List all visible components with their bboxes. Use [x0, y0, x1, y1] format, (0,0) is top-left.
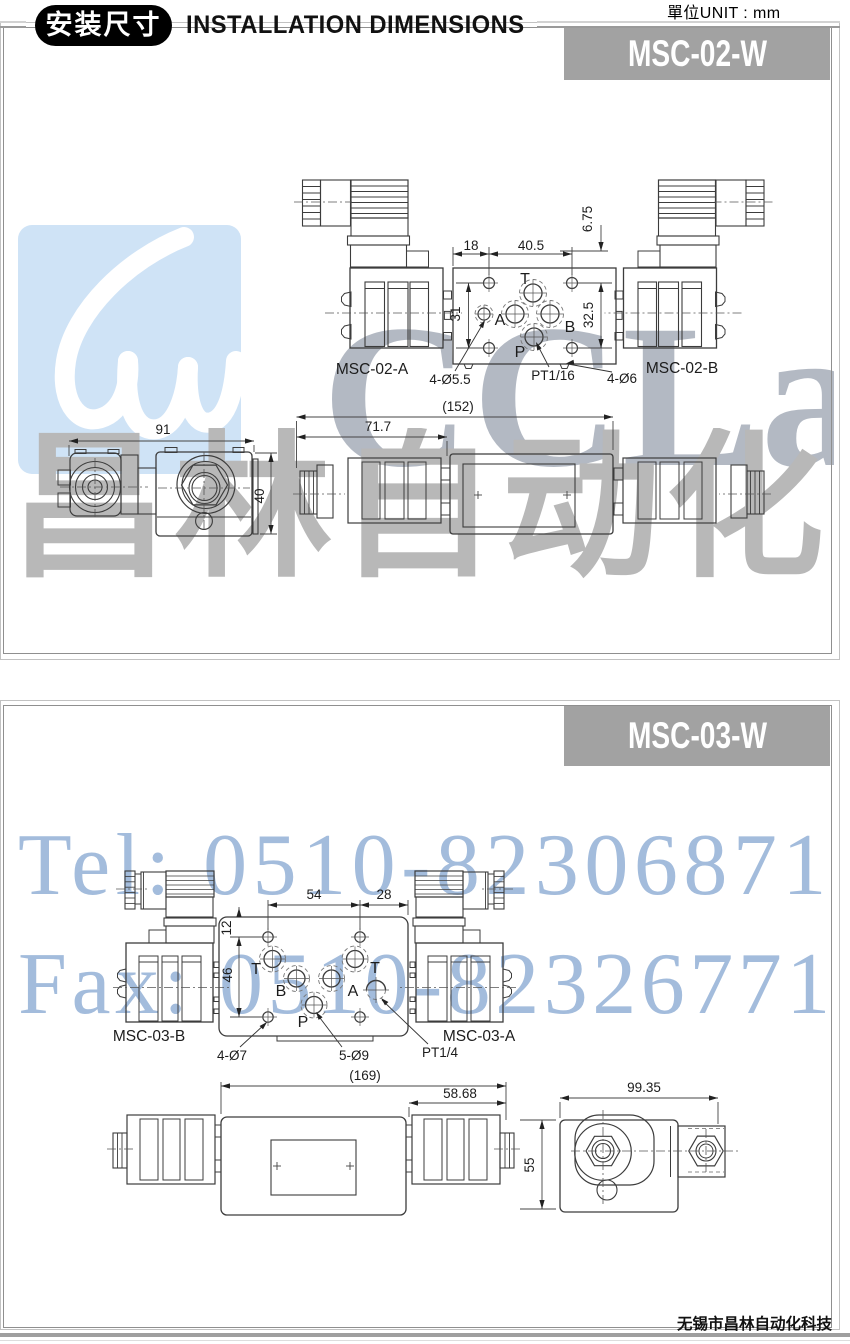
svg-text:18: 18	[463, 238, 478, 253]
svg-text:91: 91	[155, 422, 170, 437]
svg-text:40: 40	[252, 488, 267, 503]
svg-text:6.75: 6.75	[580, 206, 595, 232]
svg-text:32.5: 32.5	[581, 302, 596, 328]
svg-text:A: A	[495, 312, 506, 329]
svg-text:71.7: 71.7	[365, 419, 391, 434]
svg-text:46: 46	[220, 967, 235, 982]
svg-text:31: 31	[448, 306, 463, 321]
svg-text:4-Ø6: 4-Ø6	[607, 371, 637, 386]
svg-text:55: 55	[522, 1157, 537, 1172]
svg-text:P: P	[515, 344, 526, 361]
svg-text:B: B	[276, 983, 287, 1000]
svg-text:T: T	[370, 960, 380, 977]
svg-text:(169): (169)	[349, 1068, 381, 1083]
svg-text:T: T	[251, 961, 261, 978]
svg-text:(152): (152)	[442, 399, 474, 414]
svg-text:12: 12	[219, 920, 234, 935]
svg-text:PT1/4: PT1/4	[422, 1045, 459, 1060]
svg-text:54: 54	[306, 887, 322, 902]
svg-text:28: 28	[376, 887, 391, 902]
svg-text:T: T	[520, 271, 530, 288]
svg-text:B: B	[565, 319, 576, 336]
svg-text:P: P	[298, 1014, 309, 1031]
svg-text:MSC-02-B: MSC-02-B	[646, 360, 718, 377]
svg-text:A: A	[348, 983, 359, 1000]
svg-text:58.68: 58.68	[443, 1086, 477, 1101]
svg-text:MSC-03-A: MSC-03-A	[443, 1028, 516, 1045]
svg-text:MSC-02-A: MSC-02-A	[336, 361, 409, 378]
svg-text:99.35: 99.35	[627, 1080, 661, 1095]
svg-text:40.5: 40.5	[518, 238, 544, 253]
svg-text:PT1/16: PT1/16	[531, 368, 575, 383]
svg-text:4-Ø5.5: 4-Ø5.5	[429, 372, 470, 387]
svg-text:4-Ø7: 4-Ø7	[217, 1048, 247, 1063]
svg-text:MSC-03-B: MSC-03-B	[113, 1028, 185, 1045]
svg-text:5-Ø9: 5-Ø9	[339, 1048, 369, 1063]
